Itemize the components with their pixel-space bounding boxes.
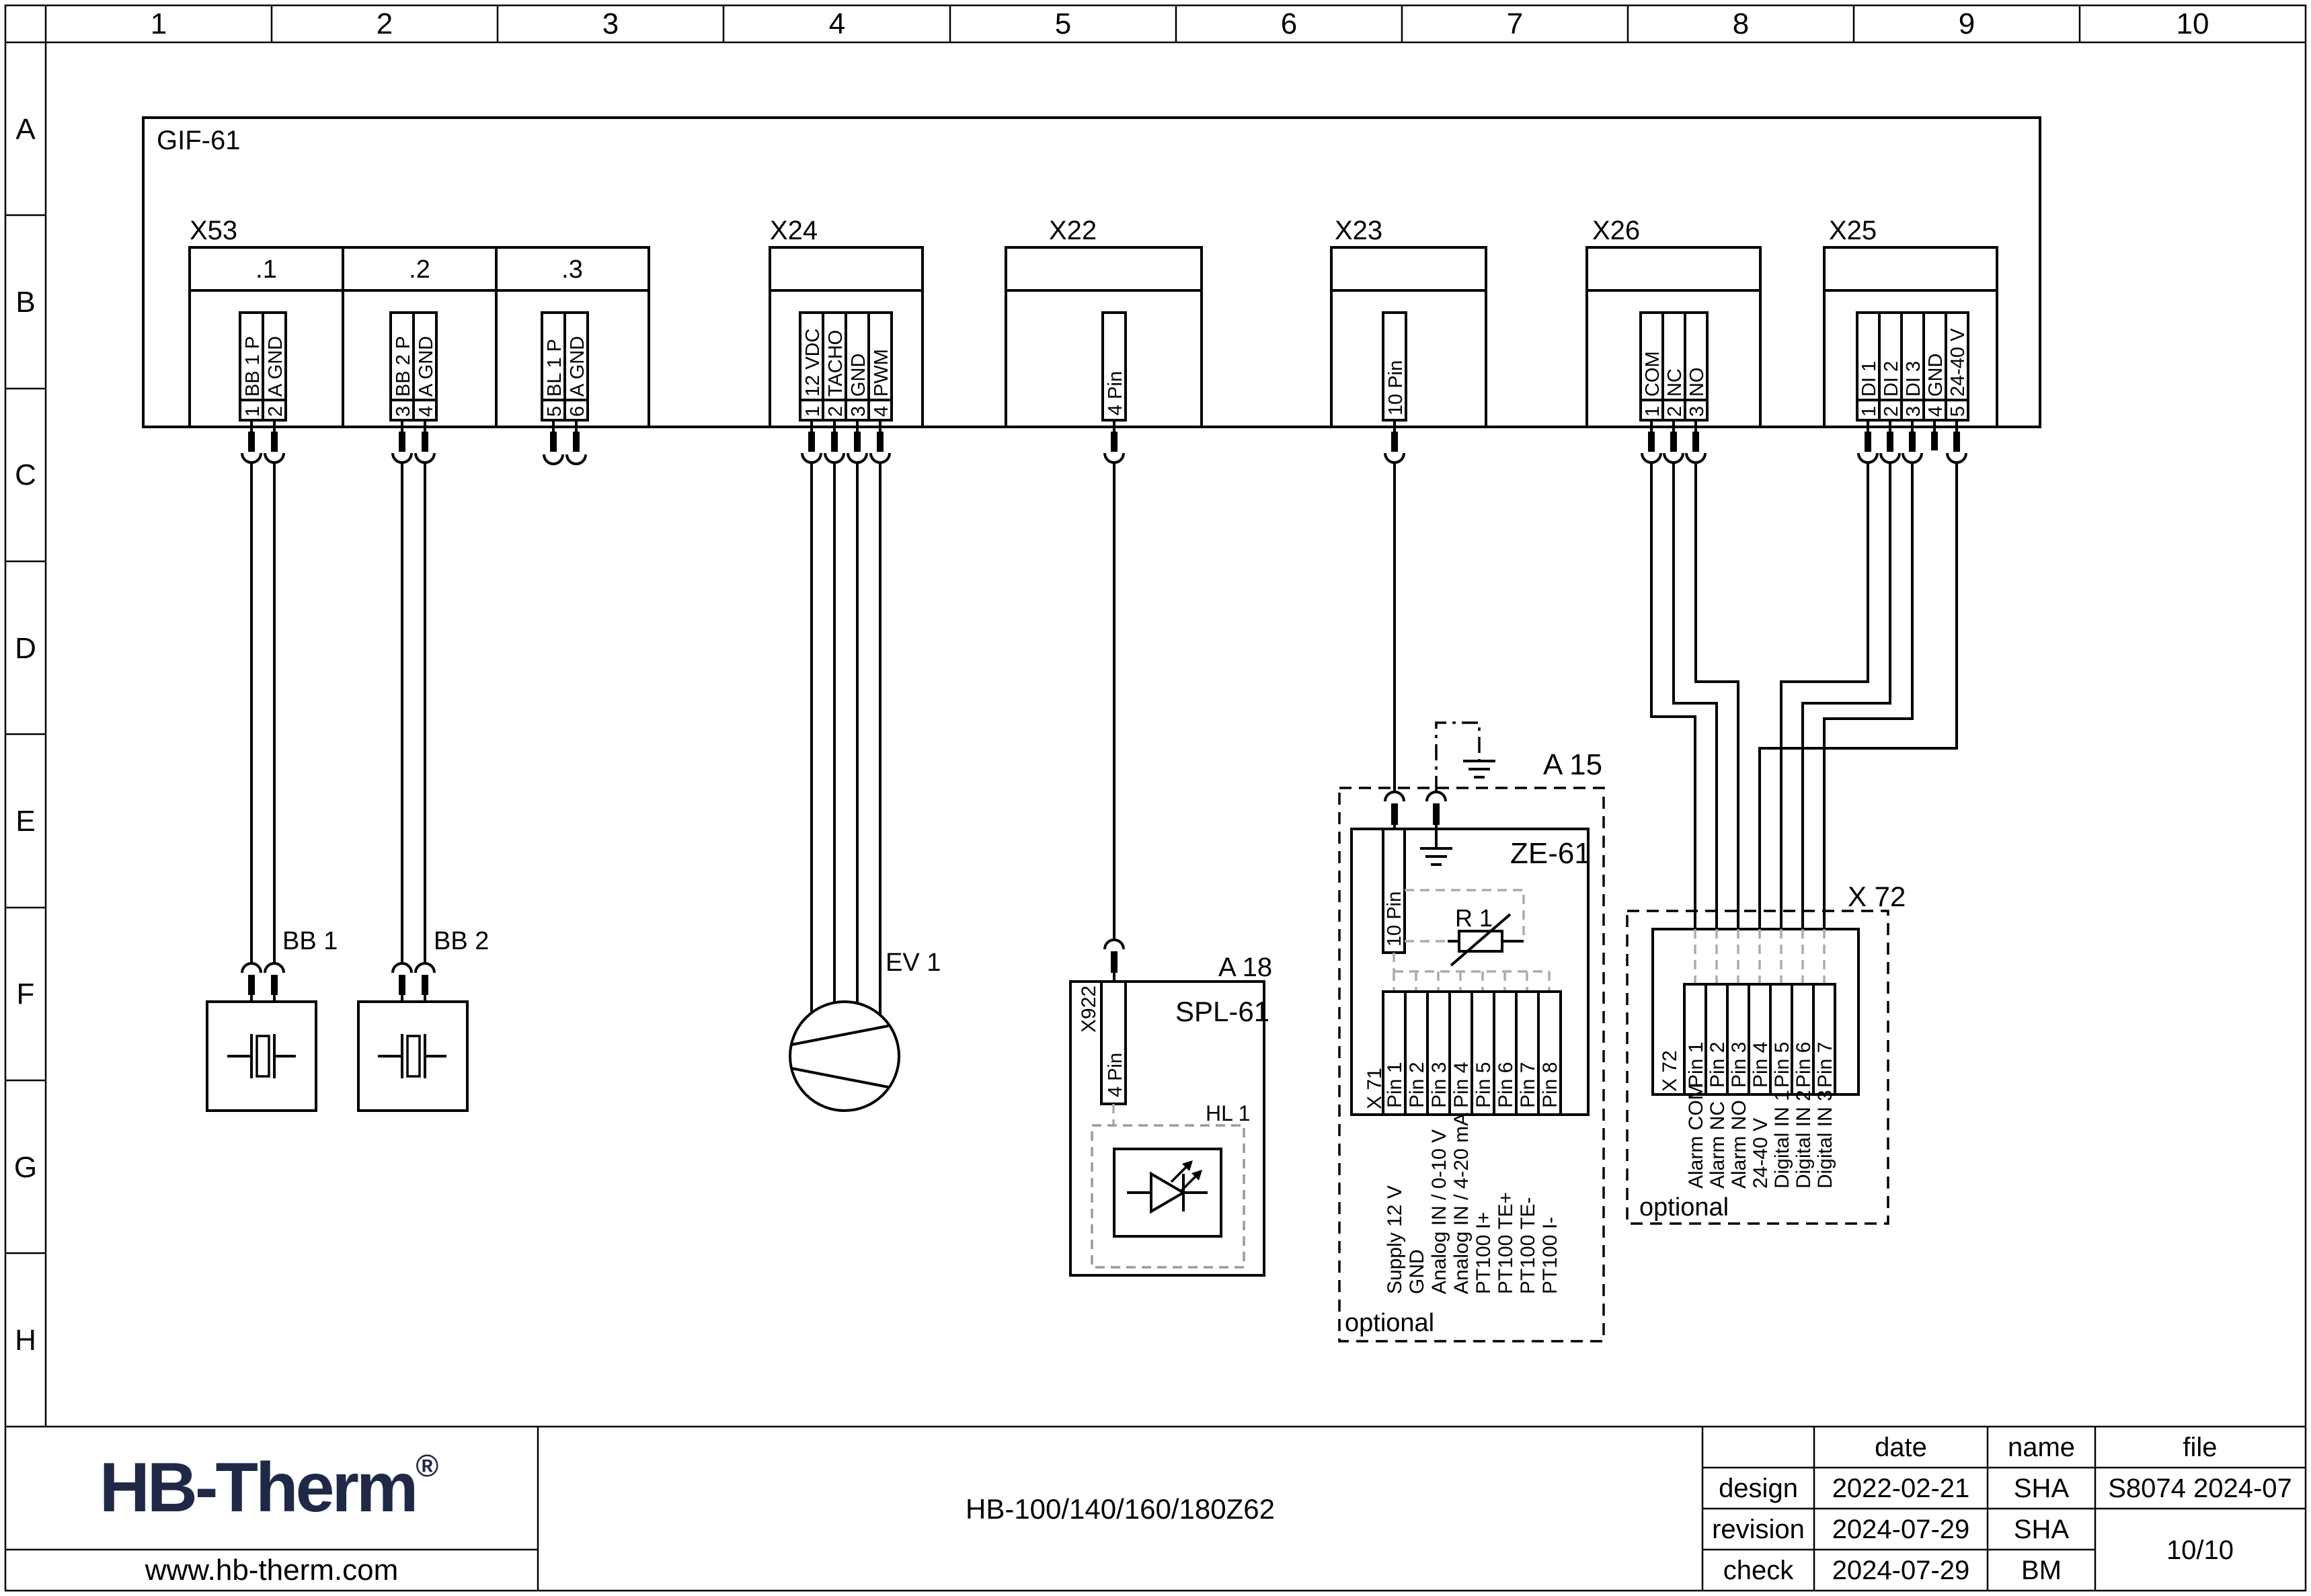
drawing-frame: 1 2 3 4 5 6 7 8 9 10 A B C D E F G H xyxy=(5,5,2306,1591)
pin-number: 6 xyxy=(567,406,588,417)
pin-number: 2 xyxy=(1664,406,1686,417)
column-label: 6 xyxy=(1281,7,1297,40)
x71-pin: Pin 7 xyxy=(1517,1062,1539,1108)
x24-label: X24 xyxy=(770,216,818,245)
pin-number: 3 xyxy=(848,406,869,417)
x24-pin-cells: 12 VDC 1 TACHO 2 GND 3 PWM 4 xyxy=(800,313,892,420)
check-name: BM xyxy=(2021,1556,2062,1585)
x23-label: X23 xyxy=(1335,216,1382,245)
x25-label: X25 xyxy=(1829,216,1877,245)
row-label: H xyxy=(15,1324,36,1357)
connector-x53: X53 .1 .2 .3 BB 1 P 1 A GND 2 BB 2 P 3 A… xyxy=(190,216,649,427)
x71-pin: Pin 6 xyxy=(1495,1062,1517,1108)
pin-function: PT100 TE+ xyxy=(1495,1192,1517,1294)
x72-optional-note: optional xyxy=(1639,1193,1729,1222)
pin-signal: A GND xyxy=(265,336,286,397)
pin-number: 2 xyxy=(1881,406,1902,417)
piezo-sensor-icon xyxy=(227,1034,296,1078)
pin-function: PT100 TE- xyxy=(1517,1197,1539,1294)
row-label: C xyxy=(15,458,36,491)
ze61-label: ZE-61 xyxy=(1510,837,1591,870)
website: www.hb-therm.com xyxy=(145,1554,399,1587)
pin-signal: 4 Pin xyxy=(1105,371,1126,415)
column-ruler-dividers xyxy=(272,5,2080,42)
x71-terminal: X 71 Pin 1 Pin 2 Pin 3 Pin 4 Pin 5 Pin 6… xyxy=(1364,992,1561,1115)
pin-number: 1 xyxy=(1858,406,1880,417)
hb-therm-logo: HB-Therm® xyxy=(100,1448,439,1527)
internal-ground xyxy=(1420,829,1452,865)
pin-number: 3 xyxy=(1903,406,1924,417)
pin-number: 1 xyxy=(242,406,264,417)
page-number: 10/10 xyxy=(2166,1535,2234,1565)
pin-function: Analog IN / 4-20 mA xyxy=(1450,1113,1473,1294)
pin-number: 4 xyxy=(871,406,892,417)
bb1-label: BB 1 xyxy=(282,927,338,955)
x25-pin-cells: DI 1 1 DI 2 2 DI 3 3 GND 4 24-40 V 5 xyxy=(1857,313,1969,420)
x53-label: X53 xyxy=(190,216,237,245)
check-date: 2024-07-29 xyxy=(1832,1556,1970,1585)
pin-signal: DI 3 xyxy=(1903,361,1924,397)
pin-function: GND xyxy=(1406,1249,1428,1294)
pin-signal: 10 Pin xyxy=(1385,360,1407,415)
bb2-label: BB 2 xyxy=(434,927,489,955)
column-label: 7 xyxy=(1507,7,1523,40)
pin-signal: COM xyxy=(1642,351,1663,397)
pin-function: Analog IN / 0-10 V xyxy=(1428,1129,1450,1294)
row-label-revision: revision xyxy=(1712,1515,1805,1544)
component-bb1: BB 1 xyxy=(207,927,338,1111)
column-label: 10 xyxy=(2177,7,2209,40)
ze61-internal-bus xyxy=(1394,953,1549,992)
pin-function: Digital IN 2 xyxy=(1793,1090,1815,1189)
x26-pin-cells: COM 1 NC 2 NO 3 xyxy=(1641,313,1708,420)
pin-signal: DI 2 xyxy=(1881,361,1902,397)
design-date: 2022-02-21 xyxy=(1832,1474,1970,1503)
pin-signal: DI 1 xyxy=(1858,361,1880,397)
x53-section-1: .1 xyxy=(256,255,277,284)
column-label: 5 xyxy=(1055,7,1071,40)
pin-signal: A GND xyxy=(567,336,588,397)
x53-section-3: .3 xyxy=(561,255,583,284)
piezo-sensor-icon xyxy=(378,1034,446,1078)
x922-pin-count: 4 Pin xyxy=(1105,1053,1126,1097)
x72-pin: Pin 7 xyxy=(1814,1042,1836,1088)
row-label: F xyxy=(17,977,35,1010)
x53-section-2: .2 xyxy=(409,255,430,284)
revision-name: SHA xyxy=(2014,1515,2070,1544)
connector-x25: X25 DI 1 1 DI 2 2 DI 3 3 GND 4 24-40 V 5 xyxy=(1824,216,1997,427)
pin-signal: NO xyxy=(1686,368,1708,397)
r1-thermistor: R 1 xyxy=(1405,890,1524,965)
header-name: name xyxy=(2008,1433,2075,1462)
column-label: 4 xyxy=(829,7,845,40)
revision-date: 2024-07-29 xyxy=(1832,1515,1970,1544)
row-label: A xyxy=(15,113,36,146)
x71-pin: Pin 3 xyxy=(1428,1062,1450,1108)
design-name: SHA xyxy=(2014,1474,2070,1503)
hl1-label: HL 1 xyxy=(1206,1101,1250,1125)
x72-pin: Pin 3 xyxy=(1728,1042,1750,1088)
a18-label: A 18 xyxy=(1218,953,1272,982)
pin-function: 24-40 V xyxy=(1750,1118,1772,1189)
spl61-label: SPL-61 xyxy=(1175,996,1269,1027)
column-ruler-labels: 1 2 3 4 5 6 7 8 9 10 xyxy=(151,7,2209,40)
pin-number: 4 xyxy=(416,406,437,417)
pin-signal: PWM xyxy=(871,349,892,397)
column-label: 3 xyxy=(602,7,619,40)
pin-number: 3 xyxy=(1686,406,1708,417)
wires xyxy=(251,463,1957,1049)
x72-pin: Pin 2 xyxy=(1707,1042,1729,1088)
pin-signal: NC xyxy=(1664,368,1686,397)
schematic-page: 1 2 3 4 5 6 7 8 9 10 A B C D E F G H GIF… xyxy=(0,0,2311,1596)
row-label: E xyxy=(15,805,35,838)
header-file: file xyxy=(2183,1433,2217,1462)
connector-x23: X23 10 Pin xyxy=(1331,216,1486,427)
row-label: G xyxy=(14,1151,37,1184)
row-label: B xyxy=(15,286,35,319)
x72-pin: Pin 6 xyxy=(1793,1042,1815,1088)
connector-x26: X26 COM 1 NC 2 NO 3 xyxy=(1587,216,1760,427)
pin-signal: GND xyxy=(848,354,869,397)
pin-function: PT100 I- xyxy=(1539,1217,1561,1294)
row-label-check: check xyxy=(1723,1556,1794,1585)
x22-label: X22 xyxy=(1049,216,1097,245)
x72-internal-bus xyxy=(1695,929,1824,984)
wiring-diagram: 1 2 3 4 5 6 7 8 9 10 A B C D E F G H GIF… xyxy=(0,0,2311,1596)
column-label: 9 xyxy=(1959,7,1975,40)
pin-number: 5 xyxy=(544,406,565,417)
x71-pin: Pin 1 xyxy=(1384,1062,1406,1108)
connector-x22: X22 4 Pin xyxy=(1006,216,1202,427)
pin-number: 1 xyxy=(802,406,824,417)
pin-function: Supply 12 V xyxy=(1384,1185,1406,1294)
module-a15-ze61: A 15 ZE-61 10 Pin R 1 xyxy=(1339,723,1604,1341)
x72-pin: Pin 1 xyxy=(1685,1042,1707,1088)
connector-x24: X24 12 VDC 1 TACHO 2 GND 3 PWM 4 xyxy=(770,216,923,427)
row-label: D xyxy=(15,632,36,665)
pin-number: 1 xyxy=(1642,406,1663,417)
x71-pin: Pin 5 xyxy=(1473,1062,1495,1108)
x922-label: X922 xyxy=(1078,986,1100,1033)
ze61-header-pins: 10 Pin xyxy=(1384,891,1405,947)
x71-pin: Pin 8 xyxy=(1539,1062,1561,1108)
pin-function: Digital IN 1 xyxy=(1771,1090,1793,1189)
title-block: HB-Therm® www.hb-therm.com HB-100/140/16… xyxy=(5,1427,2306,1591)
outer-border xyxy=(5,5,2306,1591)
pin-signal: BB 2 P xyxy=(393,336,414,397)
module-x72: X 72 X 72 Pin 1 Pin 2 Pin 3 Pin 4 Pin 5 … xyxy=(1627,881,1906,1224)
pin-function: Alarm NO xyxy=(1728,1100,1750,1189)
row-ruler-dividers xyxy=(5,215,46,1253)
row-label-design: design xyxy=(1719,1474,1798,1503)
pin-signal: 12 VDC xyxy=(802,328,824,397)
x72-pin: Pin 4 xyxy=(1750,1042,1772,1088)
pin-signal: 24-40 V xyxy=(1947,328,1969,397)
column-label: 1 xyxy=(151,7,167,40)
pin-number: 2 xyxy=(265,406,286,417)
pin-signal: A GND xyxy=(416,336,437,397)
pin-number: 2 xyxy=(825,406,847,417)
pin-number: 5 xyxy=(1947,406,1969,417)
r1-label: R 1 xyxy=(1455,904,1493,932)
x72-label: X 72 xyxy=(1659,1050,1681,1092)
module-a18-spl61: A 18 SPL-61 X922 4 Pin HL 1 xyxy=(1070,953,1272,1275)
column-label: 8 xyxy=(1733,7,1749,40)
shield-ground-loop xyxy=(1436,723,1495,792)
x71-pin: Pin 4 xyxy=(1450,1062,1473,1108)
x72-pin-functions: Alarm COM Alarm NC Alarm NO 24-40 V Digi… xyxy=(1685,1083,1836,1189)
drawing-title: HB-100/140/160/180Z62 xyxy=(966,1493,1275,1525)
x72-terminal: X 72 Pin 1 Pin 2 Pin 3 Pin 4 Pin 5 Pin 6… xyxy=(1659,984,1836,1094)
x53-pin-cells: BB 1 P 1 A GND 2 BB 2 P 3 A GND 4 BL 1 P… xyxy=(240,313,588,420)
x71-pin-functions: Supply 12 V GND Analog IN / 0-10 V Analo… xyxy=(1384,1113,1561,1294)
x72-pin: Pin 5 xyxy=(1771,1042,1793,1088)
pin-function: PT100 I+ xyxy=(1473,1211,1495,1294)
column-label: 2 xyxy=(377,7,393,40)
fan-icon xyxy=(790,1002,899,1111)
pin-signal: BL 1 P xyxy=(544,339,565,397)
pin-number: 4 xyxy=(1925,406,1947,417)
ev1-label: EV 1 xyxy=(886,949,941,977)
x72-title: X 72 xyxy=(1848,881,1906,912)
pin-signal: BB 1 P xyxy=(242,336,264,397)
file-value: S8074 2024-07 xyxy=(2108,1474,2292,1503)
pin-function: Digital IN 3 xyxy=(1814,1090,1836,1189)
pin-function: Alarm COM xyxy=(1685,1083,1707,1189)
x71-pin: Pin 2 xyxy=(1406,1062,1428,1108)
a15-optional-note: optional xyxy=(1345,1309,1434,1337)
pin-function: Alarm NC xyxy=(1707,1101,1729,1189)
header-date: date xyxy=(1875,1433,1927,1462)
x26-label: X26 xyxy=(1592,216,1640,245)
led-icon xyxy=(1127,1160,1208,1211)
a15-label: A 15 xyxy=(1543,748,1602,781)
pin-number: 3 xyxy=(393,406,414,417)
gif-61-label: GIF-61 xyxy=(157,126,240,155)
pin-signal: GND xyxy=(1925,354,1947,397)
pin-signal: TACHO xyxy=(825,330,847,397)
